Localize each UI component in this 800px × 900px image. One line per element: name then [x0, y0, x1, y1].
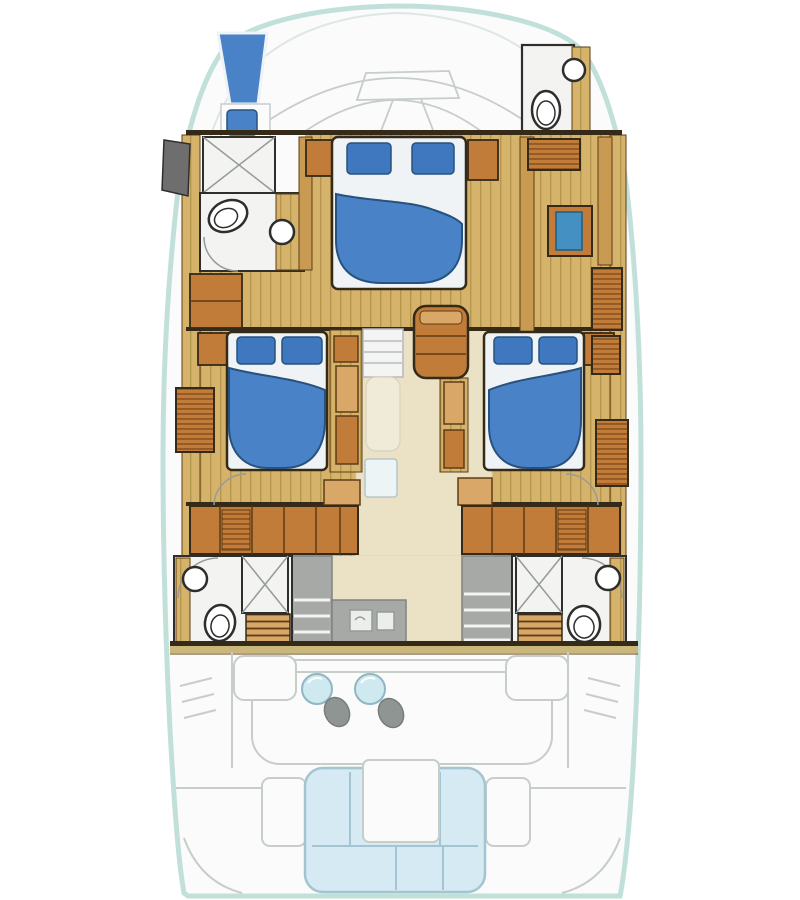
pillow-icon	[412, 143, 454, 174]
shower-bench	[518, 614, 562, 642]
wardrobe-icon	[336, 416, 358, 464]
pillow-icon	[237, 337, 275, 364]
louver-cabinet-icon	[592, 336, 620, 374]
sofa-table	[363, 760, 439, 842]
mid-bulkhead	[186, 327, 622, 331]
stern-side-block-starboard	[486, 778, 530, 846]
pillow-icon	[494, 337, 532, 364]
port-aft-bathroom	[174, 556, 292, 644]
corridor-cabinet	[324, 480, 360, 505]
pillow-icon	[539, 337, 577, 364]
nightstand	[198, 333, 228, 365]
left-nightstand	[306, 140, 332, 176]
pillow-icon	[347, 143, 391, 174]
pillow-icon	[282, 337, 322, 364]
aft-bulkhead-wall	[170, 641, 638, 646]
yacht-floor-plan	[0, 0, 800, 900]
wardrobe-icon	[444, 430, 464, 468]
forward-head	[522, 45, 590, 135]
galley-sink-icon	[350, 610, 372, 631]
hull-locker	[162, 140, 190, 196]
sink-icon	[563, 59, 585, 81]
port-cabinet-louver	[222, 510, 250, 550]
stern-side-block-port	[262, 778, 306, 846]
louver-cabinet-icon	[528, 139, 580, 170]
wardrobe-icon	[336, 366, 358, 412]
wardrobe-icon	[334, 336, 358, 362]
sink-icon	[270, 220, 294, 244]
island-cap	[420, 311, 462, 324]
aft-bulkhead-band	[170, 646, 638, 653]
wardrobe-icon	[444, 382, 464, 424]
louver-cabinet-icon	[176, 388, 214, 452]
louver-cabinet-icon	[592, 268, 622, 330]
cockpit-pod-starboard	[506, 656, 568, 700]
corridor-ramp	[366, 377, 400, 451]
starboard-cabinet-row	[462, 506, 620, 554]
floor-plan-canvas	[0, 0, 800, 900]
forward-bulkhead	[186, 130, 622, 135]
port-cabinet-row	[190, 506, 358, 554]
louver-cabinet-icon	[596, 420, 628, 486]
right-nightstand	[468, 140, 498, 180]
starboard-aft-bathroom	[512, 556, 626, 644]
shower-bench	[246, 614, 290, 642]
sink-icon	[183, 567, 207, 591]
galley-stove-icon	[377, 612, 394, 630]
corridor-seat-panel	[365, 459, 397, 497]
starboard-hull-stairs	[462, 556, 512, 644]
wood-post	[598, 137, 612, 265]
chart-desk	[556, 212, 582, 250]
corridor-cabinet	[458, 478, 492, 505]
starboard-cabinet-louver	[558, 510, 586, 550]
sink-icon	[596, 566, 620, 590]
cockpit-pod-port	[234, 656, 296, 700]
toilet-icon	[532, 91, 560, 129]
